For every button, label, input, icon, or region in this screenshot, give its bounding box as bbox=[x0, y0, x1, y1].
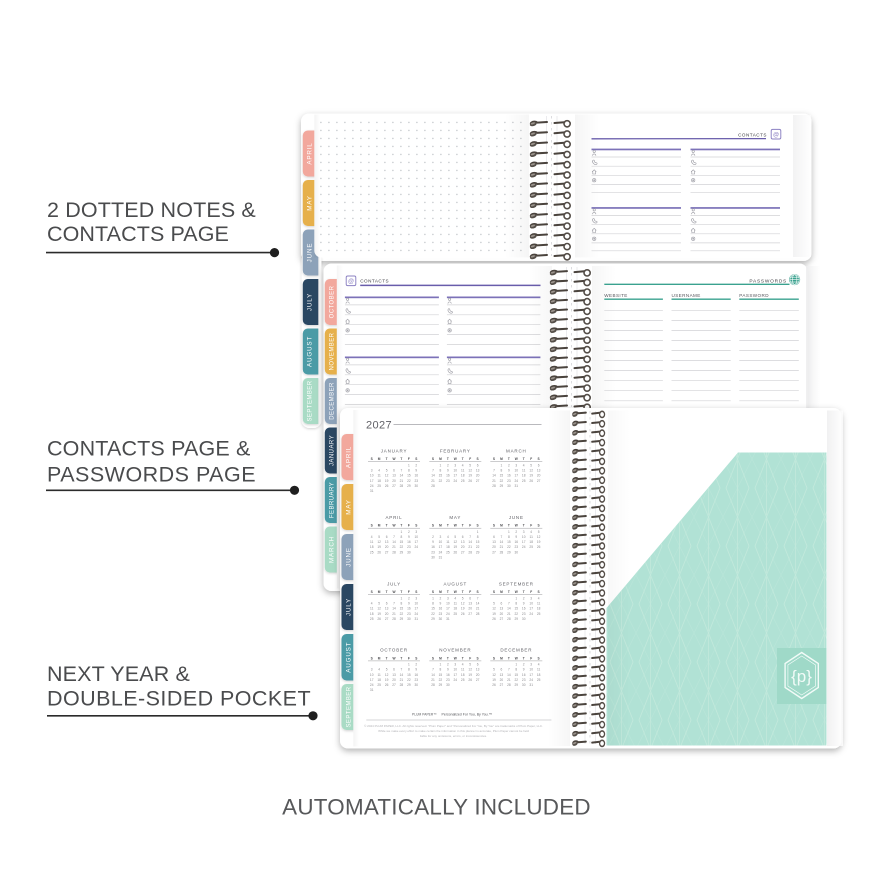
svg-text:31: 31 bbox=[439, 556, 443, 560]
svg-text:8: 8 bbox=[477, 535, 479, 539]
svg-text:18: 18 bbox=[529, 540, 533, 544]
svg-text:19: 19 bbox=[468, 474, 472, 478]
svg-text:30: 30 bbox=[522, 617, 526, 621]
svg-text:19: 19 bbox=[492, 612, 496, 616]
svg-text:15: 15 bbox=[439, 474, 443, 478]
svg-text:13: 13 bbox=[537, 468, 541, 472]
svg-text:MAY: MAY bbox=[307, 195, 314, 211]
svg-text:15: 15 bbox=[507, 540, 511, 544]
svg-text:S: S bbox=[371, 656, 373, 660]
svg-text:15: 15 bbox=[407, 474, 411, 478]
svg-text:24: 24 bbox=[529, 678, 533, 682]
svg-text:25: 25 bbox=[461, 479, 465, 483]
svg-text:T: T bbox=[523, 457, 525, 461]
svg-text:14: 14 bbox=[507, 673, 511, 677]
svg-text:5: 5 bbox=[530, 463, 532, 467]
svg-text:S: S bbox=[538, 590, 540, 594]
svg-text:8: 8 bbox=[440, 668, 442, 672]
svg-text:JULY: JULY bbox=[345, 598, 352, 616]
svg-text:3: 3 bbox=[440, 535, 442, 539]
svg-text:30: 30 bbox=[522, 683, 526, 687]
svg-text:WEBSITE: WEBSITE bbox=[604, 293, 627, 298]
svg-text:17: 17 bbox=[415, 607, 419, 611]
svg-text:3: 3 bbox=[523, 530, 525, 534]
svg-text:15: 15 bbox=[431, 607, 435, 611]
svg-text:S: S bbox=[493, 656, 495, 660]
svg-text:6: 6 bbox=[386, 535, 388, 539]
svg-text:30: 30 bbox=[507, 484, 511, 488]
svg-text:8: 8 bbox=[515, 601, 517, 605]
svg-text:18: 18 bbox=[446, 545, 450, 549]
svg-text:3: 3 bbox=[371, 668, 373, 672]
svg-text:F: F bbox=[408, 656, 410, 660]
svg-text:@: @ bbox=[773, 132, 779, 138]
svg-text:1: 1 bbox=[401, 530, 403, 534]
svg-text:24: 24 bbox=[370, 484, 374, 488]
svg-text:F: F bbox=[530, 656, 532, 660]
svg-text:F: F bbox=[408, 457, 410, 461]
svg-text:19: 19 bbox=[377, 612, 381, 616]
svg-text:25: 25 bbox=[537, 678, 541, 682]
svg-text:2: 2 bbox=[515, 530, 517, 534]
svg-text:2: 2 bbox=[523, 663, 525, 667]
svg-text:22: 22 bbox=[500, 479, 504, 483]
svg-text:S: S bbox=[371, 524, 373, 528]
svg-text:29: 29 bbox=[407, 484, 411, 488]
svg-text:17: 17 bbox=[522, 540, 526, 544]
svg-text:1: 1 bbox=[440, 463, 442, 467]
svg-text:6: 6 bbox=[386, 601, 388, 605]
svg-text:24: 24 bbox=[522, 545, 526, 549]
svg-text:28: 28 bbox=[431, 683, 435, 687]
svg-text:24: 24 bbox=[454, 479, 458, 483]
svg-text:NEXT YEAR &: NEXT YEAR & bbox=[47, 662, 190, 686]
svg-text:5: 5 bbox=[493, 601, 495, 605]
svg-text:AUTOMATICALLY INCLUDED: AUTOMATICALLY INCLUDED bbox=[282, 795, 591, 820]
svg-text:JULY: JULY bbox=[387, 582, 401, 587]
svg-text:26: 26 bbox=[492, 617, 496, 621]
svg-text:14: 14 bbox=[507, 607, 511, 611]
svg-text:27: 27 bbox=[468, 612, 472, 616]
svg-text:9: 9 bbox=[508, 468, 510, 472]
svg-text:3: 3 bbox=[454, 463, 456, 467]
svg-text:5: 5 bbox=[378, 601, 380, 605]
svg-text:9: 9 bbox=[415, 668, 417, 672]
svg-text:7: 7 bbox=[508, 668, 510, 672]
svg-text:3: 3 bbox=[415, 530, 417, 534]
svg-text:S: S bbox=[432, 524, 434, 528]
svg-text:liable for any omissions, erro: liable for any omissions, errors, or inc… bbox=[420, 734, 487, 738]
svg-text:AUGUST: AUGUST bbox=[444, 582, 468, 587]
svg-text:M: M bbox=[500, 656, 503, 660]
svg-text:11: 11 bbox=[370, 607, 374, 611]
svg-text:29: 29 bbox=[400, 550, 404, 554]
svg-text:2: 2 bbox=[523, 596, 525, 600]
svg-text:W: W bbox=[392, 524, 395, 528]
svg-text:PASSWORDS PAGE: PASSWORDS PAGE bbox=[47, 462, 256, 486]
svg-text:S: S bbox=[538, 457, 540, 461]
svg-text:2: 2 bbox=[408, 530, 410, 534]
svg-text:27: 27 bbox=[500, 683, 504, 687]
svg-text:13: 13 bbox=[385, 607, 389, 611]
svg-text:17: 17 bbox=[439, 545, 443, 549]
svg-text:19: 19 bbox=[529, 474, 533, 478]
svg-text:JANUARY: JANUARY bbox=[330, 435, 336, 466]
svg-text:M: M bbox=[378, 590, 381, 594]
svg-text:6: 6 bbox=[469, 596, 471, 600]
svg-text:7: 7 bbox=[401, 468, 403, 472]
svg-text:19: 19 bbox=[468, 673, 472, 677]
svg-text:W: W bbox=[392, 656, 395, 660]
svg-text:19: 19 bbox=[492, 678, 496, 682]
svg-text:@: @ bbox=[348, 279, 354, 285]
svg-text:8: 8 bbox=[440, 468, 442, 472]
svg-text:4: 4 bbox=[523, 463, 525, 467]
svg-text:16: 16 bbox=[439, 607, 443, 611]
svg-text:13: 13 bbox=[476, 668, 480, 672]
svg-text:31: 31 bbox=[529, 683, 533, 687]
svg-text:5: 5 bbox=[386, 668, 388, 672]
svg-text:6: 6 bbox=[477, 463, 479, 467]
svg-text:S: S bbox=[477, 524, 479, 528]
svg-text:FEBRUARY: FEBRUARY bbox=[440, 449, 471, 454]
svg-text:23: 23 bbox=[522, 678, 526, 682]
svg-text:CONTACTS: CONTACTS bbox=[738, 133, 767, 138]
svg-text:22: 22 bbox=[400, 612, 404, 616]
svg-text:21: 21 bbox=[468, 545, 472, 549]
svg-text:17: 17 bbox=[370, 479, 374, 483]
svg-text:22: 22 bbox=[431, 612, 435, 616]
svg-text:T: T bbox=[386, 457, 388, 461]
svg-text:12: 12 bbox=[468, 468, 472, 472]
svg-text:18: 18 bbox=[370, 612, 374, 616]
svg-text:JUNE: JUNE bbox=[345, 547, 352, 567]
svg-text:28: 28 bbox=[468, 550, 472, 554]
svg-text:9: 9 bbox=[447, 468, 449, 472]
svg-text:T: T bbox=[400, 457, 402, 461]
svg-text:13: 13 bbox=[492, 540, 496, 544]
svg-text:4: 4 bbox=[462, 663, 464, 667]
svg-text:9: 9 bbox=[523, 668, 525, 672]
svg-text:T: T bbox=[400, 524, 402, 528]
svg-text:18: 18 bbox=[370, 545, 374, 549]
svg-text:16: 16 bbox=[446, 474, 450, 478]
svg-text:JULY: JULY bbox=[307, 293, 314, 311]
svg-text:S: S bbox=[538, 656, 540, 660]
svg-text:W: W bbox=[454, 524, 457, 528]
svg-text:S: S bbox=[477, 457, 479, 461]
svg-text:20: 20 bbox=[476, 474, 480, 478]
svg-text:MARCH: MARCH bbox=[329, 536, 336, 563]
svg-text:19: 19 bbox=[385, 479, 389, 483]
svg-text:4: 4 bbox=[371, 535, 373, 539]
svg-text:S: S bbox=[538, 524, 540, 528]
svg-text:APRIL: APRIL bbox=[385, 515, 402, 520]
svg-text:13: 13 bbox=[468, 601, 472, 605]
svg-text:1: 1 bbox=[477, 530, 479, 534]
svg-text:SEPTEMBER: SEPTEMBER bbox=[499, 582, 534, 587]
svg-text:T: T bbox=[508, 590, 510, 594]
svg-text:T: T bbox=[462, 457, 464, 461]
svg-text:17: 17 bbox=[370, 678, 374, 682]
svg-text:S: S bbox=[432, 590, 434, 594]
svg-text:26: 26 bbox=[454, 550, 458, 554]
svg-text:21: 21 bbox=[400, 479, 404, 483]
svg-text:18: 18 bbox=[377, 479, 381, 483]
svg-text:9: 9 bbox=[447, 668, 449, 672]
svg-text:8: 8 bbox=[508, 535, 510, 539]
svg-text:3: 3 bbox=[530, 596, 532, 600]
svg-text:2027: 2027 bbox=[366, 420, 392, 432]
svg-text:25: 25 bbox=[370, 550, 374, 554]
svg-text:T: T bbox=[508, 656, 510, 660]
svg-text:2: 2 bbox=[447, 463, 449, 467]
svg-text:4: 4 bbox=[454, 596, 456, 600]
svg-text:15: 15 bbox=[400, 607, 404, 611]
svg-text:10: 10 bbox=[439, 540, 443, 544]
svg-text:F: F bbox=[469, 524, 471, 528]
svg-text:29: 29 bbox=[515, 683, 519, 687]
svg-text:21: 21 bbox=[431, 479, 435, 483]
svg-text:S: S bbox=[493, 457, 495, 461]
svg-text:26: 26 bbox=[377, 550, 381, 554]
svg-text:Personalized For You, By You.™: Personalized For You, By You.™ bbox=[442, 713, 493, 717]
svg-text:3: 3 bbox=[415, 596, 417, 600]
svg-text:MAY: MAY bbox=[449, 515, 461, 520]
svg-text:17: 17 bbox=[529, 607, 533, 611]
svg-text:T: T bbox=[386, 524, 388, 528]
svg-text:12: 12 bbox=[385, 673, 389, 677]
svg-text:18: 18 bbox=[454, 607, 458, 611]
svg-text:OCTOBER: OCTOBER bbox=[330, 285, 336, 318]
svg-text:20: 20 bbox=[461, 545, 465, 549]
svg-text:12: 12 bbox=[385, 474, 389, 478]
svg-text:6: 6 bbox=[393, 668, 395, 672]
svg-text:© 2024 PLUM PAPER, LLC. All ri: © 2024 PLUM PAPER, LLC. All rights reser… bbox=[364, 724, 543, 728]
svg-text:15: 15 bbox=[515, 607, 519, 611]
svg-text:DOUBLE-SIDED POCKET: DOUBLE-SIDED POCKET bbox=[47, 686, 311, 710]
svg-text:28: 28 bbox=[392, 550, 396, 554]
svg-text:20: 20 bbox=[500, 678, 504, 682]
svg-text:4: 4 bbox=[538, 596, 540, 600]
svg-text:14: 14 bbox=[431, 673, 435, 677]
svg-text:15: 15 bbox=[515, 673, 519, 677]
svg-text:30: 30 bbox=[415, 683, 419, 687]
svg-text:27: 27 bbox=[537, 479, 541, 483]
svg-text:27: 27 bbox=[500, 617, 504, 621]
svg-text:3: 3 bbox=[371, 468, 373, 472]
svg-text:F: F bbox=[469, 590, 471, 594]
svg-text:23: 23 bbox=[407, 612, 411, 616]
svg-text:12: 12 bbox=[529, 468, 533, 472]
svg-text:26: 26 bbox=[468, 479, 472, 483]
svg-text:23: 23 bbox=[439, 612, 443, 616]
svg-text:7: 7 bbox=[432, 468, 434, 472]
svg-text:1: 1 bbox=[401, 596, 403, 600]
svg-text:3: 3 bbox=[454, 663, 456, 667]
svg-text:9: 9 bbox=[408, 601, 410, 605]
svg-text:APRIL: APRIL bbox=[307, 142, 314, 164]
svg-text:S: S bbox=[415, 457, 417, 461]
svg-text:S: S bbox=[415, 590, 417, 594]
svg-text:31: 31 bbox=[370, 489, 374, 493]
svg-text:W: W bbox=[392, 590, 395, 594]
svg-text:1: 1 bbox=[515, 663, 517, 667]
svg-text:27: 27 bbox=[492, 550, 496, 554]
svg-text:13: 13 bbox=[461, 540, 465, 544]
svg-text:JUNE: JUNE bbox=[307, 243, 314, 263]
svg-text:6: 6 bbox=[393, 468, 395, 472]
svg-text:8: 8 bbox=[408, 468, 410, 472]
svg-text:19: 19 bbox=[377, 545, 381, 549]
svg-text:W: W bbox=[454, 590, 457, 594]
svg-text:25: 25 bbox=[529, 545, 533, 549]
svg-text:22: 22 bbox=[439, 678, 443, 682]
svg-text:21: 21 bbox=[507, 678, 511, 682]
svg-text:26: 26 bbox=[492, 683, 496, 687]
svg-text:22: 22 bbox=[407, 479, 411, 483]
svg-text:12: 12 bbox=[492, 607, 496, 611]
svg-text:7: 7 bbox=[393, 535, 395, 539]
svg-text:26: 26 bbox=[537, 545, 541, 549]
svg-text:7: 7 bbox=[469, 535, 471, 539]
svg-text:29: 29 bbox=[400, 617, 404, 621]
svg-text:11: 11 bbox=[537, 601, 541, 605]
svg-text:21: 21 bbox=[431, 678, 435, 682]
svg-text:T: T bbox=[523, 590, 525, 594]
svg-text:MARCH: MARCH bbox=[506, 449, 527, 454]
svg-text:5: 5 bbox=[462, 596, 464, 600]
svg-text:12: 12 bbox=[537, 535, 541, 539]
svg-text:27: 27 bbox=[476, 678, 480, 682]
svg-text:17: 17 bbox=[454, 474, 458, 478]
svg-text:S: S bbox=[432, 656, 434, 660]
svg-text:30: 30 bbox=[407, 617, 411, 621]
svg-text:8: 8 bbox=[432, 601, 434, 605]
svg-text:NOVEMBER: NOVEMBER bbox=[330, 332, 336, 370]
svg-text:T: T bbox=[523, 524, 525, 528]
svg-text:8: 8 bbox=[401, 601, 403, 605]
svg-text:30: 30 bbox=[446, 683, 450, 687]
svg-text:W: W bbox=[515, 524, 518, 528]
svg-text:T: T bbox=[462, 590, 464, 594]
svg-text:12: 12 bbox=[377, 607, 381, 611]
svg-text:16: 16 bbox=[522, 607, 526, 611]
svg-text:W: W bbox=[454, 656, 457, 660]
svg-text:27: 27 bbox=[392, 683, 396, 687]
svg-text:M: M bbox=[378, 457, 381, 461]
svg-text:21: 21 bbox=[392, 612, 396, 616]
svg-text:26: 26 bbox=[385, 484, 389, 488]
svg-text:11: 11 bbox=[446, 540, 450, 544]
svg-text:24: 24 bbox=[454, 678, 458, 682]
svg-text:W: W bbox=[454, 457, 457, 461]
svg-text:21: 21 bbox=[500, 545, 504, 549]
svg-text:31: 31 bbox=[415, 617, 419, 621]
svg-text:7: 7 bbox=[432, 668, 434, 672]
svg-text:4: 4 bbox=[378, 468, 380, 472]
svg-text:F: F bbox=[530, 590, 532, 594]
svg-text:F: F bbox=[530, 457, 532, 461]
svg-text:18: 18 bbox=[537, 673, 541, 677]
svg-text:14: 14 bbox=[392, 607, 396, 611]
svg-text:8: 8 bbox=[515, 668, 517, 672]
svg-text:16: 16 bbox=[515, 540, 519, 544]
svg-text:25: 25 bbox=[446, 550, 450, 554]
svg-text:15: 15 bbox=[407, 673, 411, 677]
svg-text:F: F bbox=[469, 457, 471, 461]
svg-text:22: 22 bbox=[476, 545, 480, 549]
svg-text:21: 21 bbox=[392, 545, 396, 549]
svg-text:T: T bbox=[523, 656, 525, 660]
svg-text:5: 5 bbox=[493, 668, 495, 672]
svg-text:13: 13 bbox=[392, 673, 396, 677]
svg-text:12: 12 bbox=[461, 601, 465, 605]
svg-text:12: 12 bbox=[468, 668, 472, 672]
svg-text:16: 16 bbox=[415, 474, 419, 478]
svg-text:T: T bbox=[386, 590, 388, 594]
svg-text:29: 29 bbox=[407, 683, 411, 687]
svg-text:20: 20 bbox=[385, 545, 389, 549]
svg-text:26: 26 bbox=[468, 678, 472, 682]
svg-text:3: 3 bbox=[515, 463, 517, 467]
svg-text:14: 14 bbox=[400, 673, 404, 677]
svg-text:2 DOTTED NOTES &: 2 DOTTED NOTES & bbox=[47, 198, 256, 222]
svg-text:F: F bbox=[530, 524, 532, 528]
svg-text:W: W bbox=[515, 590, 518, 594]
svg-text:While we make every effort to: While we make every effort to make certa… bbox=[378, 729, 529, 733]
svg-text:1: 1 bbox=[508, 530, 510, 534]
svg-text:25: 25 bbox=[537, 612, 541, 616]
svg-text:31: 31 bbox=[370, 688, 374, 692]
svg-text:F: F bbox=[469, 656, 471, 660]
svg-text:1: 1 bbox=[408, 463, 410, 467]
svg-text:20: 20 bbox=[468, 607, 472, 611]
svg-text:22: 22 bbox=[400, 545, 404, 549]
svg-text:7: 7 bbox=[401, 668, 403, 672]
svg-text:T: T bbox=[386, 656, 388, 660]
svg-text:SEPTEMBER: SEPTEMBER bbox=[346, 686, 352, 727]
svg-text:22: 22 bbox=[439, 479, 443, 483]
svg-text:20: 20 bbox=[500, 612, 504, 616]
svg-text:21: 21 bbox=[476, 607, 480, 611]
svg-text:11: 11 bbox=[537, 668, 541, 672]
svg-text:7: 7 bbox=[393, 601, 395, 605]
svg-text:31: 31 bbox=[446, 617, 450, 621]
svg-text:24: 24 bbox=[439, 550, 443, 554]
svg-text:CONTACTS PAGE &: CONTACTS PAGE & bbox=[47, 436, 251, 460]
svg-text:S: S bbox=[493, 590, 495, 594]
svg-text:24: 24 bbox=[415, 612, 419, 616]
svg-text:27: 27 bbox=[385, 617, 389, 621]
svg-text:11: 11 bbox=[454, 601, 458, 605]
svg-text:6: 6 bbox=[477, 663, 479, 667]
svg-text:5: 5 bbox=[378, 535, 380, 539]
svg-text:8: 8 bbox=[501, 468, 503, 472]
svg-text:M: M bbox=[439, 524, 442, 528]
svg-text:6: 6 bbox=[538, 463, 540, 467]
svg-text:25: 25 bbox=[370, 617, 374, 621]
svg-text:21: 21 bbox=[400, 678, 404, 682]
svg-text:1: 1 bbox=[408, 663, 410, 667]
svg-text:22: 22 bbox=[407, 678, 411, 682]
svg-text:M: M bbox=[439, 457, 442, 461]
svg-text:18: 18 bbox=[461, 474, 465, 478]
svg-text:25: 25 bbox=[461, 678, 465, 682]
svg-text:APRIL: APRIL bbox=[345, 446, 352, 468]
svg-text:16: 16 bbox=[415, 673, 419, 677]
svg-text:CONTACTS PAGE: CONTACTS PAGE bbox=[47, 222, 229, 246]
